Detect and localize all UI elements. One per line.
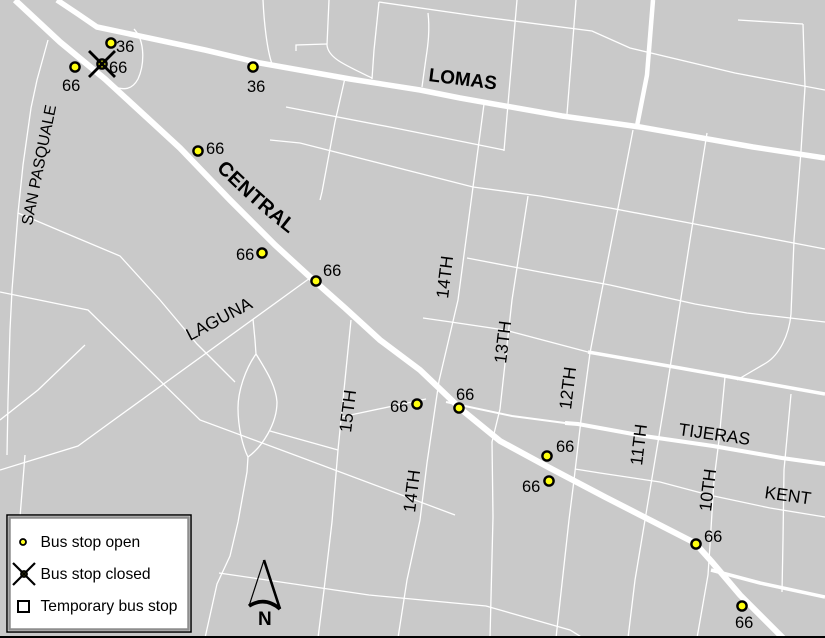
svg-text:66: 66 — [323, 262, 341, 280]
svg-text:66: 66 — [109, 59, 127, 77]
svg-text:66: 66 — [62, 77, 80, 95]
svg-text:66: 66 — [735, 614, 753, 632]
svg-text:N: N — [258, 609, 272, 630]
svg-text:66: 66 — [522, 478, 540, 496]
svg-text:Bus stop open: Bus stop open — [41, 534, 141, 551]
svg-text:36: 36 — [247, 78, 265, 96]
svg-text:66: 66 — [704, 528, 722, 546]
svg-text:66: 66 — [556, 438, 574, 456]
svg-text:66: 66 — [236, 246, 254, 264]
svg-text:36: 36 — [116, 38, 134, 56]
svg-text:66: 66 — [206, 140, 224, 158]
svg-text:66: 66 — [390, 398, 408, 416]
svg-text:Temporary bus stop: Temporary bus stop — [41, 598, 178, 615]
svg-text:Bus stop closed: Bus stop closed — [41, 566, 151, 583]
svg-text:66: 66 — [456, 386, 474, 404]
